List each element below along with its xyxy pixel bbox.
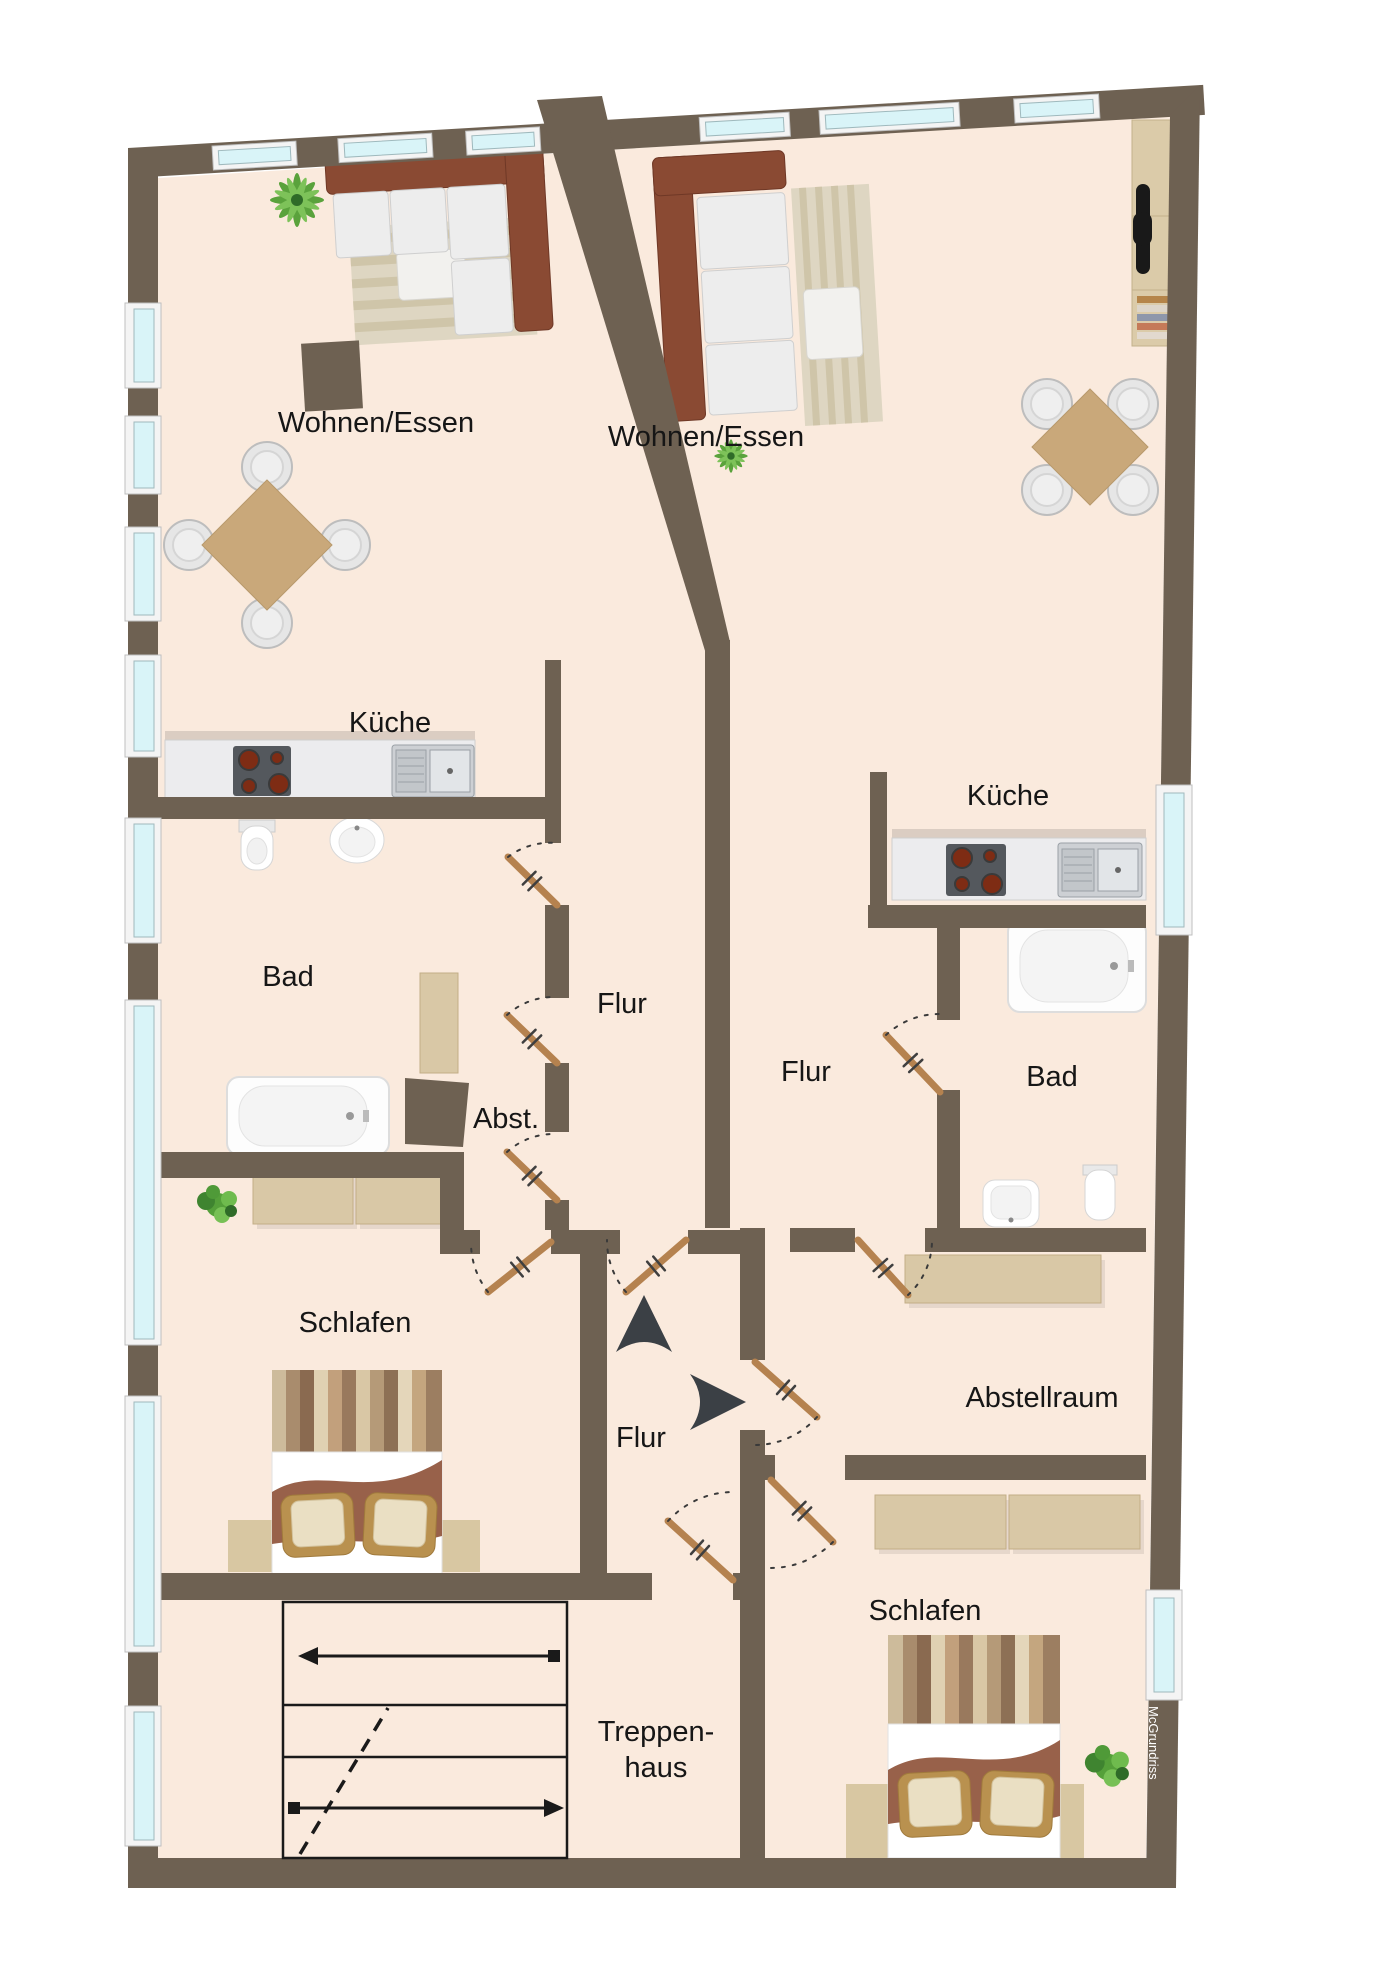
washbasin-icon xyxy=(330,817,384,863)
room-label-living-right: Wohnen/Essen xyxy=(608,421,804,453)
room-label-bedroom-right: Schlafen xyxy=(869,1595,982,1627)
wardrobe-icon xyxy=(875,1495,1144,1554)
room-label-hall-right: Flur xyxy=(781,1056,831,1088)
toilet-icon xyxy=(1083,1165,1117,1220)
shelf-icon xyxy=(405,1078,469,1147)
room-label-staircase-line2: haus xyxy=(625,1752,688,1784)
bathtub-icon xyxy=(227,1077,389,1155)
room-label-hall-landing: Flur xyxy=(616,1422,666,1454)
books-icon xyxy=(1137,296,1171,339)
coffee-table-icon xyxy=(803,287,863,360)
room-label-hall-left: Flur xyxy=(597,988,647,1020)
dining-set-icon xyxy=(1022,379,1158,515)
room-label-living-left: Wohnen/Essen xyxy=(278,407,474,439)
room-label-bath-right: Bad xyxy=(1026,1061,1078,1093)
cabinet-icon xyxy=(420,973,458,1073)
floor-plan-canvas: Wohnen/Essen Wohnen/Essen Küche Küche Ba… xyxy=(0,0,1399,1981)
window-icon xyxy=(125,303,161,1846)
rug-icon xyxy=(791,184,883,426)
room-label-storage-room: Abstellraum xyxy=(965,1382,1118,1414)
room-label-storage-abbr: Abst. xyxy=(473,1103,539,1135)
sink-icon xyxy=(392,745,474,797)
kitchen-counter-icon xyxy=(892,829,1146,900)
room-label-staircase-line1: Treppen- xyxy=(598,1716,715,1748)
room-label-kitchen-right: Küche xyxy=(967,780,1049,812)
tv-board-icon xyxy=(301,340,363,411)
sink-icon xyxy=(1058,843,1142,897)
stove-icon xyxy=(946,844,1006,896)
room-label-bath-left: Bad xyxy=(262,961,314,993)
washbasin-icon xyxy=(983,1180,1039,1227)
sideboard-icon xyxy=(905,1255,1105,1308)
kitchen-counter-icon xyxy=(165,731,475,800)
room-label-kitchen-left: Küche xyxy=(349,707,431,739)
bottom-wall xyxy=(128,1858,1176,1888)
sideboard-icon xyxy=(253,1170,460,1229)
room-label-bedroom-left: Schlafen xyxy=(299,1307,412,1339)
watermark-text: McGrundriss xyxy=(1146,1706,1161,1780)
bathtub-icon xyxy=(1008,920,1146,1012)
toilet-icon xyxy=(239,820,275,870)
stove-icon xyxy=(233,746,291,796)
